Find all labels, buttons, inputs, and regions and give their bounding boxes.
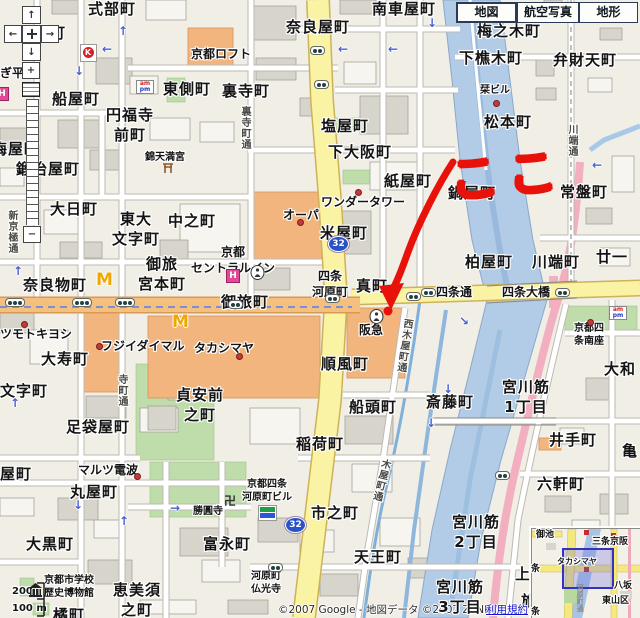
label-dainichicho: 大日町 xyxy=(50,200,98,220)
label-fujii-daimaru: フジイダイマル xyxy=(101,339,185,355)
label-kamiyacho: 紙屋町 xyxy=(384,172,432,192)
circle-k-icon[interactable]: K xyxy=(80,44,97,62)
label-wonder-tower: ワンダータワー xyxy=(321,195,405,211)
label-kawaramachi-bldg: 京都四条 河原町ビル xyxy=(242,478,292,504)
oneway-arrow-icon: ← xyxy=(338,42,348,56)
label-kashiwayacho: 柏屋町 xyxy=(465,253,513,273)
traffic-signal-icon xyxy=(115,298,135,307)
traffic-signal-icon xyxy=(325,294,340,303)
label-yamato-partial: 大和 xyxy=(604,360,636,380)
poi-dot-icon xyxy=(355,189,362,196)
ampm-icon[interactable]: ampm xyxy=(136,80,154,94)
terms-link[interactable]: 利用規約 xyxy=(486,602,528,617)
label-mini-sanjo-keihan: 三条京阪 xyxy=(592,537,628,549)
traffic-signal-icon xyxy=(72,298,92,307)
shrine-torii-icon xyxy=(161,161,175,174)
pan-left-button[interactable]: ← xyxy=(4,25,22,43)
zoom-in-button[interactable]: + xyxy=(22,62,40,79)
label-tennocho: 天王町 xyxy=(354,548,402,568)
traffic-signal-icon xyxy=(314,80,329,89)
label-shimoosakacho: 下大阪町 xyxy=(328,143,392,163)
oneway-arrow-icon: ↓ xyxy=(73,498,83,512)
poi-dot-icon xyxy=(297,219,304,226)
label-tachibanacho: 橘町 xyxy=(53,606,85,618)
label-ichinocho: 市之町 xyxy=(311,504,359,524)
subway-logo-icon[interactable] xyxy=(258,505,277,521)
tab-map[interactable]: 地図 xyxy=(456,2,517,23)
traffic-signal-icon xyxy=(421,288,436,297)
hotel-icon[interactable]: H xyxy=(226,269,240,283)
zoom-slider-track[interactable] xyxy=(26,99,39,225)
label-takashimaya: タカシマヤ xyxy=(194,341,254,357)
oneway-arrow-icon: ↓ xyxy=(443,382,453,396)
label-marutsu-denpa: マルツ電波 xyxy=(78,463,138,479)
traffic-signal-icon xyxy=(268,563,283,572)
ampm-icon-2[interactable]: ampm xyxy=(609,306,627,320)
route-32-shield-2: 32 xyxy=(285,517,306,533)
oneway-arrow-icon: ↓ xyxy=(74,64,84,78)
label-kawabatacho: 川端町 xyxy=(532,253,580,273)
label-miyagawasuji1: 宮川筋 1丁目 xyxy=(502,378,550,417)
label-mini-higashiyamaku: 東山区 xyxy=(602,596,629,608)
oneway-arrow-icon: ← xyxy=(102,42,112,56)
poi-dot-icon xyxy=(587,319,594,326)
label-junpucho: 順風町 xyxy=(321,355,369,375)
station-entrance-icon[interactable] xyxy=(250,265,265,280)
pan-right-button[interactable]: → xyxy=(41,25,59,43)
label-nakanocho: 中之町 xyxy=(168,212,216,232)
label-teramachi-dori: 寺町通 xyxy=(115,374,128,407)
label-idecho: 井手町 xyxy=(549,431,597,451)
hotel-icon-2[interactable]: H xyxy=(0,87,9,101)
label-mini-jo1: 条 xyxy=(531,564,540,576)
label-shioyacho: 塩屋町 xyxy=(321,117,369,137)
poi-dot-icon xyxy=(21,321,28,328)
label-gihei-partial: ぎ平 xyxy=(0,66,24,82)
label-shijo-dori: 四条通 xyxy=(436,285,472,301)
label-tabiyacho: 足袋屋町 xyxy=(66,418,130,438)
label-mini-jo2: 条 xyxy=(531,607,540,618)
label-miyagawasuji2: 宮川筋 2丁目 xyxy=(452,513,500,552)
poi-dot-icon xyxy=(493,100,500,107)
pan-up-button[interactable]: ↑ xyxy=(22,6,41,24)
label-mini-takashimaya: タカシマヤ xyxy=(557,557,597,567)
label-tominagacho: 富永町 xyxy=(203,535,251,555)
label-kawaramachi-bukkoji: 河原町 仏光寺 xyxy=(251,570,281,596)
oneway-arrow-icon: ↑ xyxy=(13,264,23,278)
oneway-arrow-icon: ↘ xyxy=(459,314,469,328)
oneway-arrow-icon: ↑ xyxy=(118,24,128,38)
label-shiori-bldg: 栞ビル xyxy=(480,84,510,97)
traffic-signal-icon xyxy=(310,46,325,55)
label-mini-yasaka: 八坂 xyxy=(614,581,632,593)
mcdonalds-icon-2[interactable]: M xyxy=(172,312,189,332)
label-mini-kawaramachidori: 河原町通 xyxy=(575,584,584,612)
label-kyoto-loft: 京都ロフト xyxy=(191,47,251,63)
label-kami-partial: 上 xyxy=(515,565,531,585)
label-nijuichi-partial: 廿一 xyxy=(596,248,628,268)
label-yacho-partial: 屋町 xyxy=(0,465,32,485)
annotation-koko: ここ xyxy=(446,131,568,213)
oneway-arrow-icon: ← xyxy=(592,158,602,172)
museum-icon xyxy=(28,582,43,598)
label-naramonocho: 奈良物町 xyxy=(23,276,87,296)
label-enpukujimaecho: 円福寺 前町 xyxy=(106,106,154,145)
label-uraderacho: 裏寺町 xyxy=(222,82,270,102)
label-rokkencho: 六軒町 xyxy=(537,475,585,495)
label-benzaitencho: 弁財天町 xyxy=(553,51,617,71)
traffic-signal-icon xyxy=(228,300,243,309)
label-shinmachi: 真町 xyxy=(356,277,388,297)
label-ebisunocho: 恵美須 之町 xyxy=(113,581,161,618)
label-sendocho: 船頭町 xyxy=(349,398,397,418)
label-shijo-ohashi: 四条大橋 xyxy=(502,285,550,301)
label-higashidaimonjicho: 東大 文字町 xyxy=(112,210,160,249)
label-school-museum: 京都市学校 歴史博物館 xyxy=(44,574,94,600)
minimap-viewport[interactable] xyxy=(562,548,614,589)
traffic-signal-icon xyxy=(5,298,25,307)
oneway-arrow-icon: ← xyxy=(388,42,398,56)
label-hankyu: 阪急 xyxy=(359,323,383,339)
label-shinkyogoku-dori: 新京極通 xyxy=(5,210,18,254)
pan-center-button[interactable] xyxy=(22,25,41,43)
label-higashigawacho: 東側町 xyxy=(163,80,211,100)
label-inaricho: 稲荷町 xyxy=(296,435,344,455)
label-umenokicho: 梅之木町 xyxy=(477,22,541,42)
label-mini-oike: 御池 xyxy=(536,530,554,542)
label-matsumotokiyoshi-partial: ツモトキヨシ xyxy=(0,327,72,343)
poi-dot-icon xyxy=(236,353,243,360)
zoom-slider-handle[interactable] xyxy=(22,82,40,97)
poi-dot-icon xyxy=(134,473,141,480)
oneway-arrow-icon: ↑ xyxy=(10,396,20,410)
label-shoenji: 勝圓寺 xyxy=(193,505,223,518)
label-daikokucho: 大黒町 xyxy=(26,535,74,555)
label-uraderamachi-dori: 裏寺町通 xyxy=(238,106,251,150)
label-daijucho: 大寿町 xyxy=(41,350,89,370)
pan-down-button[interactable]: ↓ xyxy=(22,43,41,61)
route-32-shield: 32 xyxy=(328,236,349,252)
label-kawabata-dori: 川端通 xyxy=(565,124,578,157)
oneway-arrow-icon: ↓ xyxy=(427,16,437,30)
tab-aerial[interactable]: 航空写真 xyxy=(517,2,579,23)
label-teianmaenocho: 貞安前 之町 xyxy=(176,386,224,425)
label-shikibucho: 式部町 xyxy=(88,0,136,20)
traffic-signal-icon xyxy=(406,292,421,301)
label-matsumotocho: 松本町 xyxy=(484,113,532,133)
map-type-tabs: 地図 航空写真 地形 xyxy=(456,2,638,23)
tab-terrain[interactable]: 地形 xyxy=(579,2,638,23)
traffic-signal-icon xyxy=(495,471,510,480)
center-cross-icon xyxy=(27,33,37,35)
oneway-arrow-icon: → xyxy=(170,501,180,515)
label-kame-partial: 亀 xyxy=(622,442,638,462)
traffic-signal-icon xyxy=(555,288,570,297)
zoom-out-button[interactable]: − xyxy=(23,226,41,243)
oneway-arrow-icon: ↓ xyxy=(426,416,436,430)
label-otabimiyamotocho: 御旅 宮本町 xyxy=(138,255,186,294)
label-narayacho: 奈良屋町 xyxy=(286,18,350,38)
label-miyagawasuji3: 宮川筋 3丁目 xyxy=(436,578,484,617)
mcdonalds-icon[interactable]: M xyxy=(96,270,113,290)
label-shimokorikicho: 下樵木町 xyxy=(459,49,523,69)
temple-manji-icon: 卍 xyxy=(224,492,236,509)
oneway-arrow-icon: ↑ xyxy=(119,514,129,528)
hankyu-station-icon[interactable] xyxy=(369,309,384,324)
map-canvas[interactable]: 式部町屋町南車屋町奈良屋町梅之木町下樵木町弁財天町東側町裏寺町船屋町円福寺 前町… xyxy=(0,0,640,618)
label-funayacho: 船屋町 xyxy=(52,90,100,110)
poi-dot-icon xyxy=(96,343,103,350)
label-monjicho: 文字町 xyxy=(0,382,48,402)
